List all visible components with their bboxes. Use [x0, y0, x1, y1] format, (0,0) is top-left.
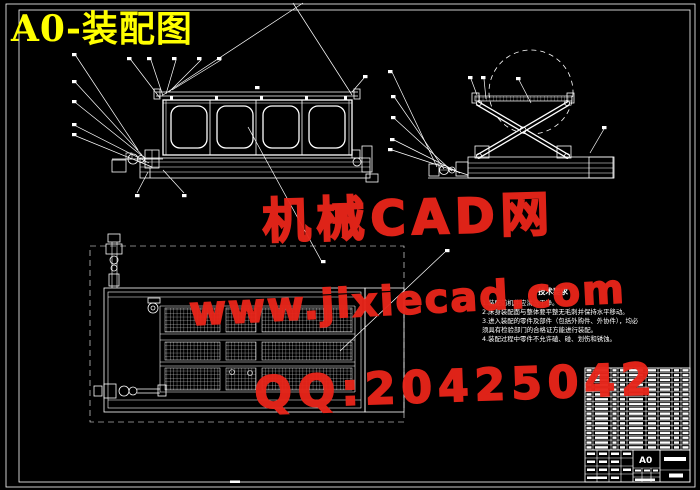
side-view	[428, 50, 614, 178]
tech-requirement-line: 4.装配过程中零件不允许磕、碰、划伤和锈蚀。	[482, 334, 616, 343]
machine-body	[163, 100, 352, 155]
panel-window	[217, 106, 253, 148]
machine-base	[140, 158, 370, 178]
front-view	[112, 89, 378, 182]
panel-window	[263, 106, 299, 148]
panel-window	[309, 106, 345, 148]
scissor-platform	[475, 96, 572, 101]
watermark: 机械CAD网 www.jixiecad.com QQ:20425042	[188, 186, 658, 419]
watermark-brand: 机械CAD网	[262, 186, 556, 250]
sheet-title: A0-装配图	[10, 8, 193, 50]
shaft-assembly-top	[106, 234, 122, 288]
title-block: A0	[585, 450, 690, 482]
sheet-size-label: A0	[639, 456, 652, 466]
side-base	[468, 157, 613, 178]
end-bracket-front	[352, 146, 378, 182]
drawing-canvas: 技术要求 1.装配前机件应清洗干净。 2.床身装配面与整体要平整无毛刺并保持水平…	[0, 0, 700, 490]
shaft-assembly-bottom	[94, 384, 166, 398]
cad-drawing-sheet: 技术要求 1.装配前机件应清洗干净。 2.床身装配面与整体要平整无毛刺并保持水平…	[0, 0, 700, 490]
roll-circle	[489, 50, 573, 134]
tech-requirement-line: 须具有检验部门的合格证方能进行装配。	[482, 325, 597, 334]
scissor-arms	[477, 101, 570, 159]
border-centering-mark	[230, 481, 240, 484]
coupling-left	[148, 298, 160, 313]
panel-window	[171, 106, 207, 148]
drive-unit-front	[112, 150, 163, 178]
